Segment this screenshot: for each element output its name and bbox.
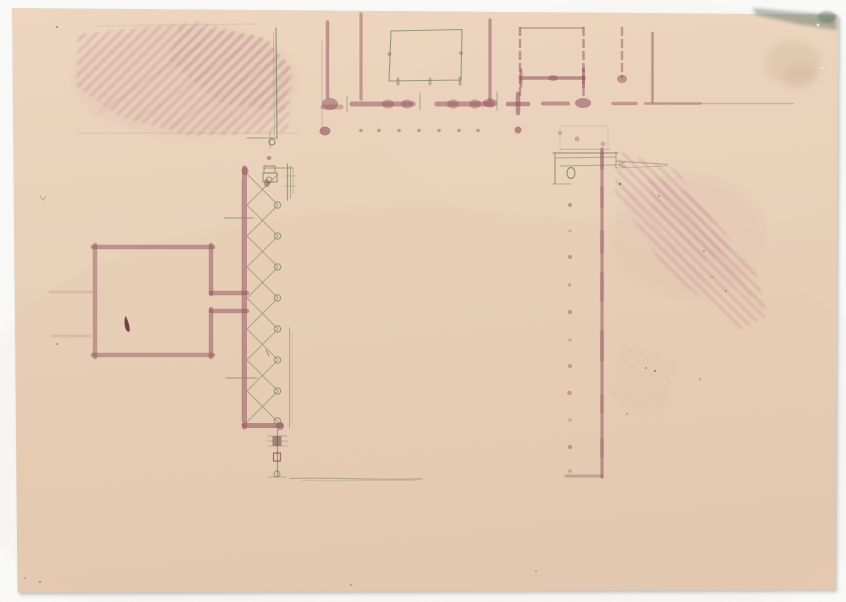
scan-stage — [0, 0, 846, 602]
scanned-plan-drawing — [0, 0, 846, 602]
scan-grain-overlay — [0, 0, 846, 602]
